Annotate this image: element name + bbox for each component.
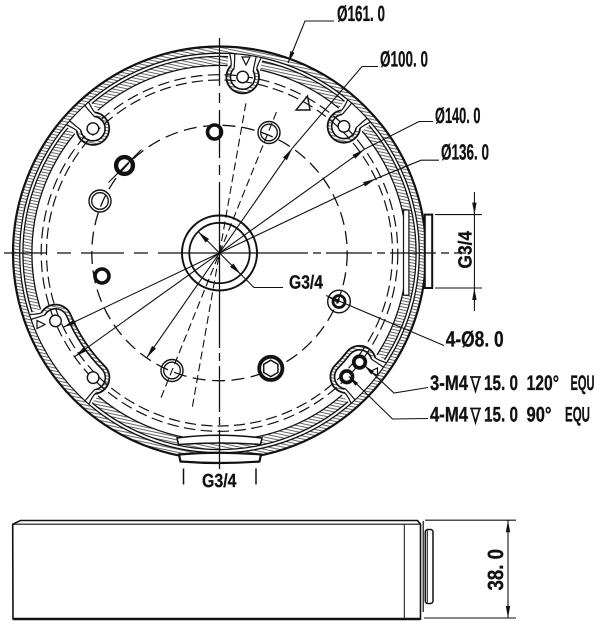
svg-text:EQU: EQU <box>571 372 595 395</box>
svg-text:3-M4: 3-M4 <box>430 372 468 395</box>
svg-text:Ø161. 0: Ø161. 0 <box>337 1 385 26</box>
svg-text:4-M4: 4-M4 <box>430 404 468 427</box>
svg-text:G3/4: G3/4 <box>202 471 237 492</box>
svg-text:15. 0: 15. 0 <box>484 404 518 427</box>
svg-text:90°: 90° <box>527 404 552 427</box>
svg-text:G3/4: G3/4 <box>289 273 323 294</box>
svg-text:EQU: EQU <box>565 404 590 427</box>
svg-text:Ø140. 0: Ø140. 0 <box>435 103 481 128</box>
svg-text:15. 0: 15. 0 <box>484 372 518 395</box>
svg-text:Ø100. 0: Ø100. 0 <box>380 47 428 72</box>
svg-text:Ø136. 0: Ø136. 0 <box>441 140 489 165</box>
svg-text:120°: 120° <box>527 372 560 395</box>
svg-text:4-Ø8. 0: 4-Ø8. 0 <box>446 327 504 352</box>
svg-text:G3/4: G3/4 <box>456 231 477 269</box>
svg-text:38. 0: 38. 0 <box>483 549 508 591</box>
